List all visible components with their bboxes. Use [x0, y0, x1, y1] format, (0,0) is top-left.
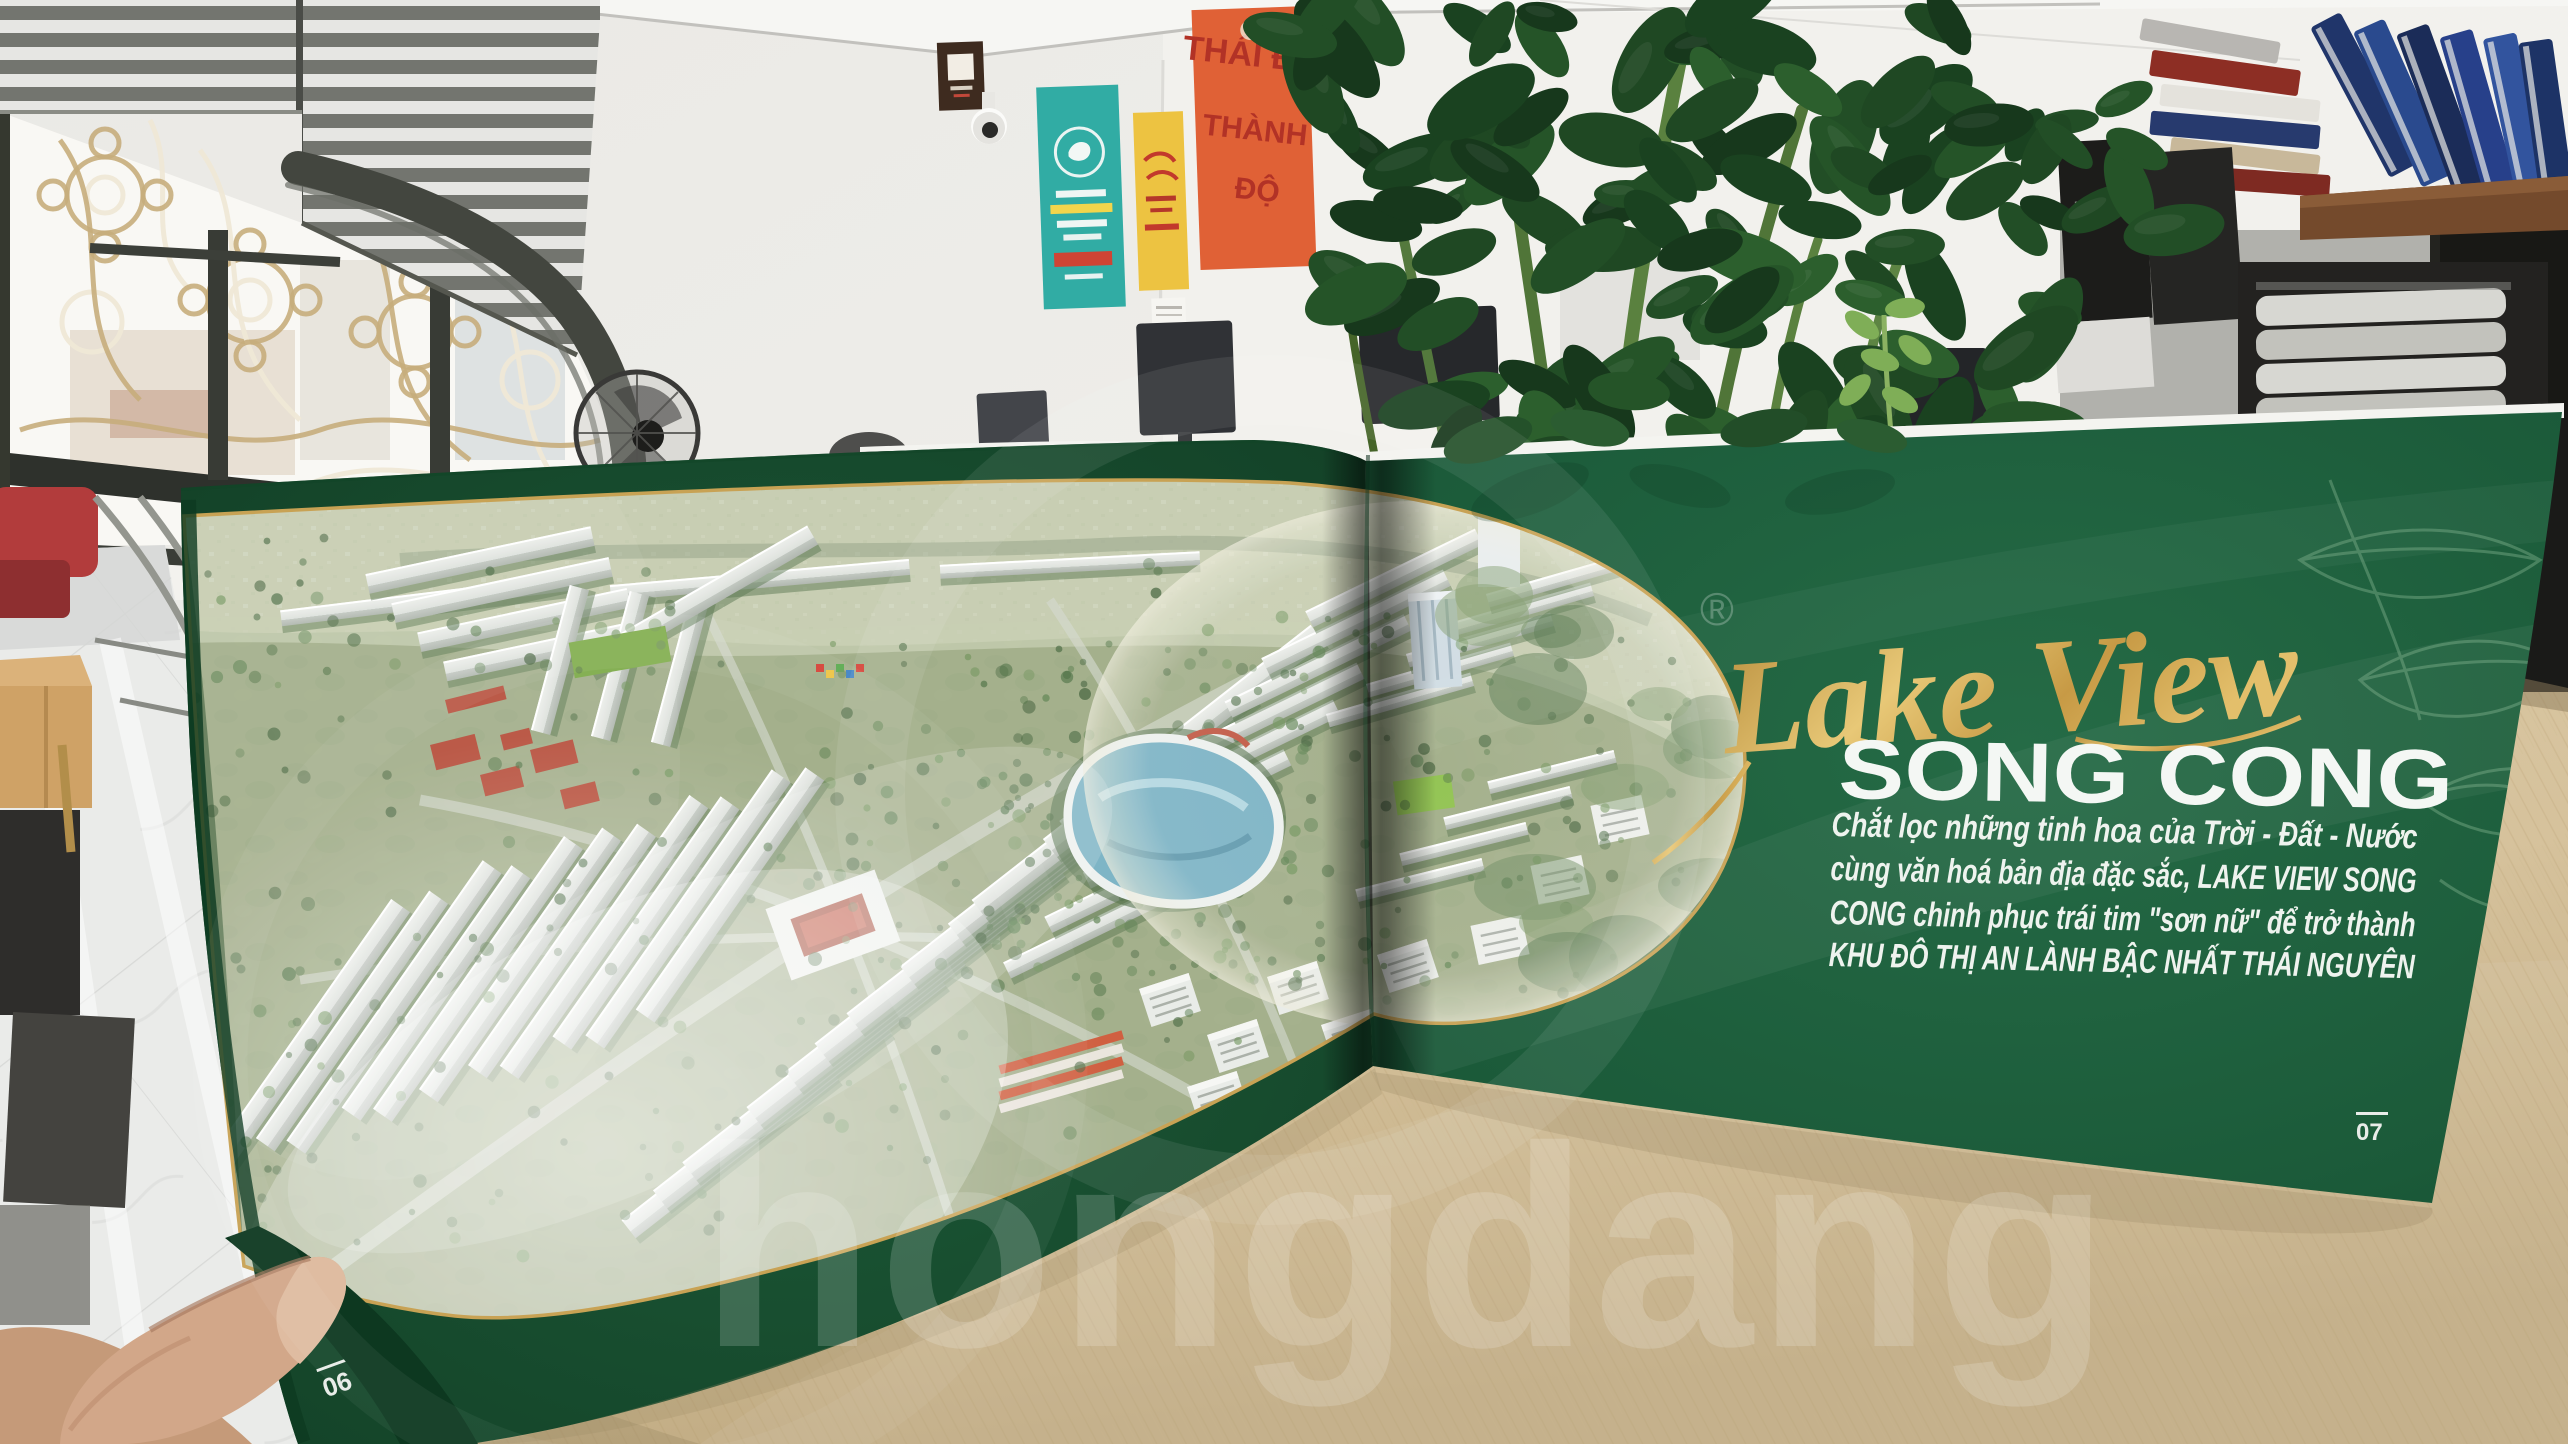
- svg-text:ĐỘ: ĐỘ: [1233, 171, 1281, 210]
- svg-text:07: 07: [2356, 1119, 2383, 1146]
- svg-text:hongdang: hongdang: [700, 1087, 2114, 1409]
- svg-text:®: ®: [1700, 583, 1734, 635]
